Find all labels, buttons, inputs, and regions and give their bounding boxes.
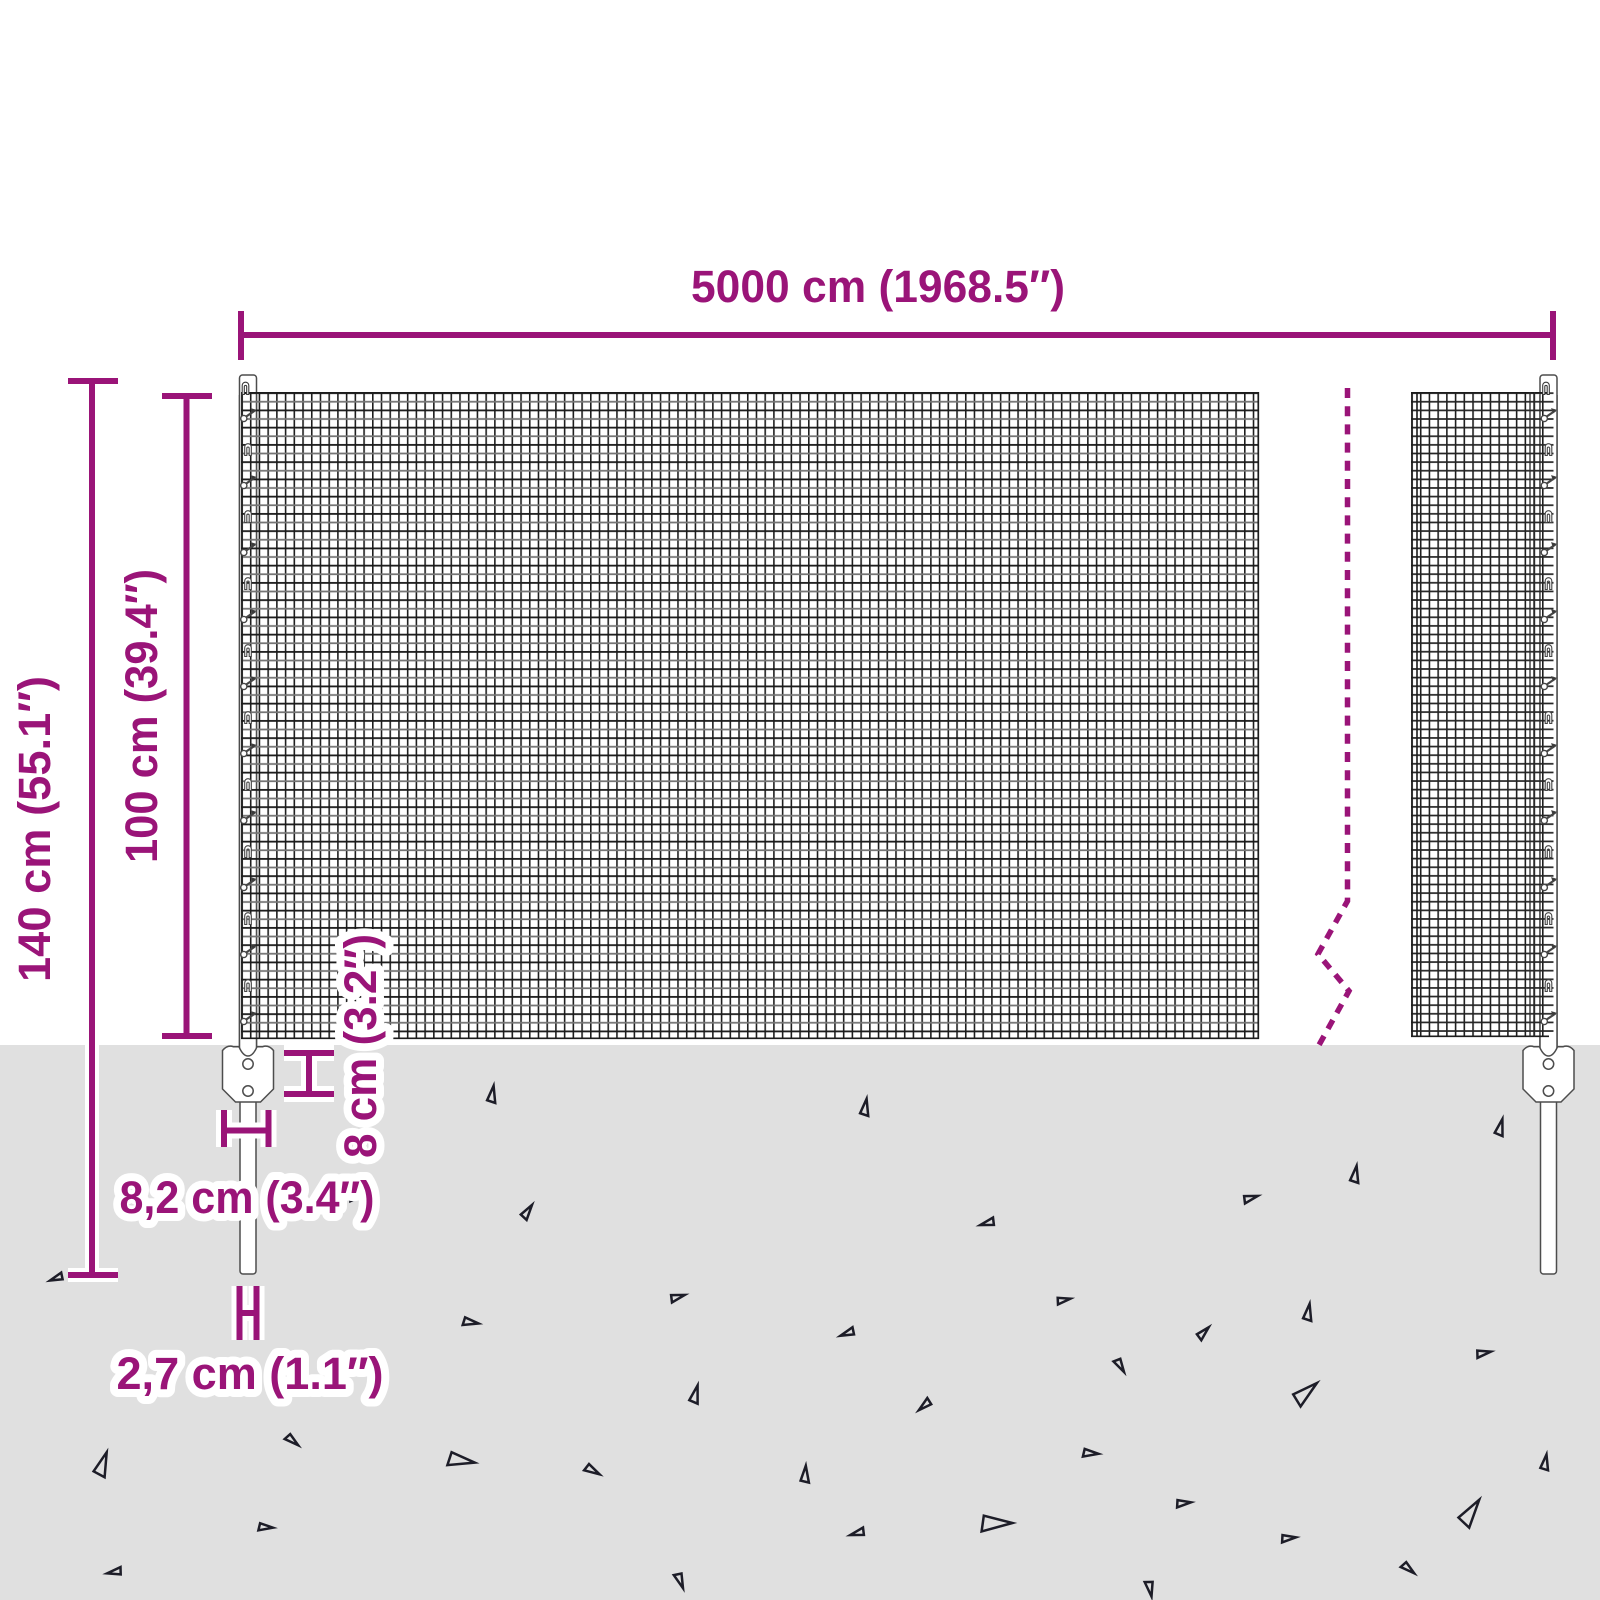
svg-text:5000 cm (1968.5″): 5000 cm (1968.5″) (691, 261, 1065, 312)
svg-text:140 cm (55.1″): 140 cm (55.1″) (9, 676, 60, 982)
svg-text:8 cm (3.2″): 8 cm (3.2″) (335, 934, 386, 1158)
svg-text:100 cm (39.4″): 100 cm (39.4″) (116, 569, 167, 863)
svg-text:8,2 cm (3.4″): 8,2 cm (3.4″) (120, 1172, 375, 1223)
svg-text:2,7 cm (1.1″): 2,7 cm (1.1″) (117, 1348, 384, 1399)
